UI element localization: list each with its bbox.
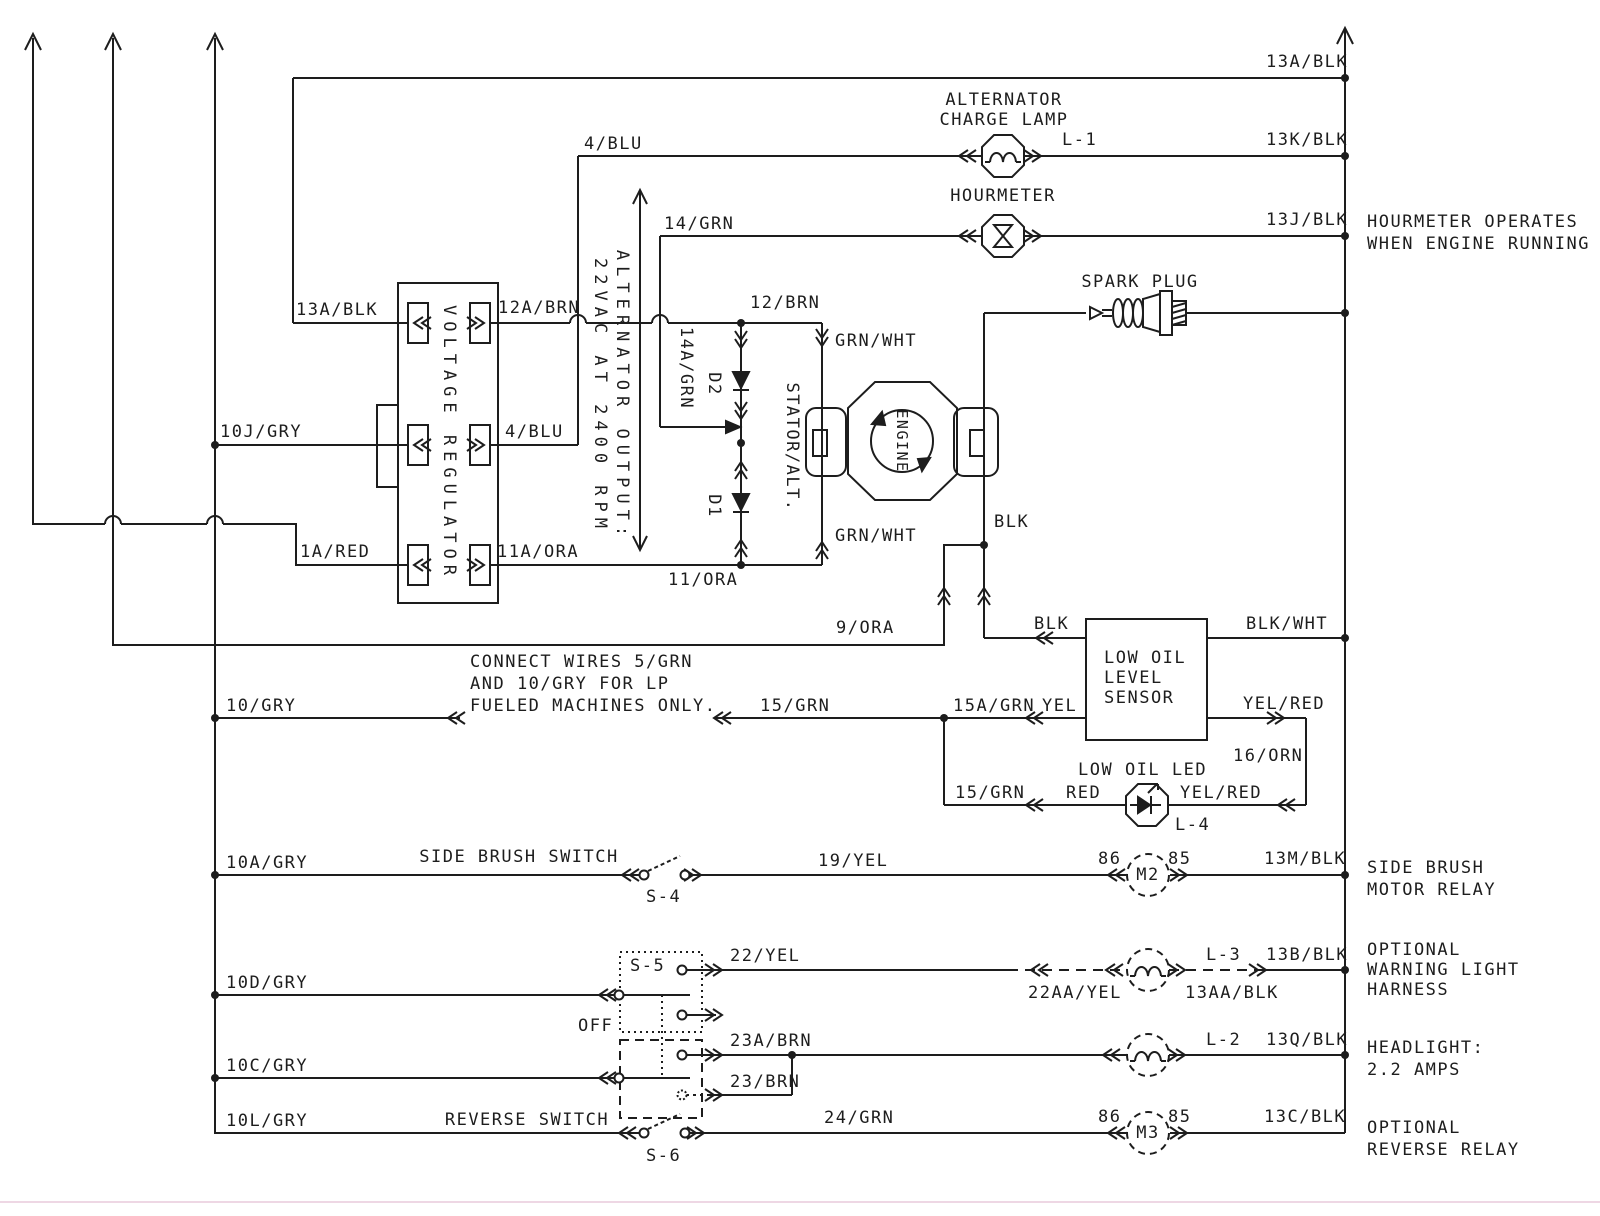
relay-m2-pin-85: 85 — [1168, 849, 1191, 869]
wire-label-10-gry: 10/GRY — [226, 696, 296, 716]
wire-label-22aa-yel: 22AA/YEL — [1028, 983, 1122, 1003]
switch-s5-icon — [620, 952, 702, 1118]
wire-label-10d-gry: 10D/GRY — [226, 973, 308, 993]
low-oil-led-icon — [1126, 784, 1168, 826]
wire-label-14a-grn: 14A/GRN — [676, 327, 696, 409]
stator-title: STATOR/ALT. — [782, 382, 802, 511]
relay-m2-pin-86: 86 — [1098, 849, 1121, 869]
wire-spark — [944, 313, 1345, 638]
hourmeter-note-1: HOURMETER OPERATES — [1367, 212, 1578, 232]
charge-lamp-title-2: CHARGE LAMP — [939, 110, 1068, 130]
spark-plug-title: SPARK PLUG — [1081, 272, 1198, 292]
wire-label-13k-blk: 13K/BLK — [1266, 130, 1348, 150]
reg-in-bot-label: 1A/RED — [300, 542, 370, 562]
wire-label-9-ora: 9/ORA — [836, 618, 895, 638]
diode-d2-label: D2 — [704, 372, 724, 395]
wire-label-yel-red-bot: YEL/RED — [1180, 783, 1262, 803]
wire-label-10a-gry: 10A/GRY — [226, 853, 308, 873]
wire-14-grn — [660, 236, 1345, 427]
wire-label-blk-engine: BLK — [994, 512, 1029, 532]
sensor-title-2: LEVEL — [1104, 668, 1163, 688]
relay-m3-pin-86: 86 — [1098, 1107, 1121, 1127]
reverse-desc-2: REVERSE RELAY — [1367, 1140, 1520, 1160]
wire-label-yel-red-top: YEL/RED — [1243, 694, 1325, 714]
wire-label-13b-blk: 13B/BLK — [1266, 945, 1348, 965]
relay-m2-id: M2 — [1136, 865, 1159, 885]
wire-label-10c-gry: 10C/GRY — [226, 1056, 308, 1076]
warning-desc-2: WARNING LIGHT — [1367, 960, 1520, 980]
sensor-title-1: LOW OIL — [1104, 648, 1186, 668]
wire-label-23a-brn: 23A/BRN — [730, 1031, 812, 1051]
wire-label-12-brn: 12/BRN — [750, 293, 820, 313]
headlight-desc-2: 2.2 AMPS — [1367, 1060, 1461, 1080]
wire-label-13c-blk: 13C/BLK — [1264, 1107, 1346, 1127]
alt-output-arrow — [633, 190, 647, 550]
switch-contacts — [615, 871, 690, 1138]
relay-m3-pin-85: 85 — [1168, 1107, 1191, 1127]
warning-desc-3: HARNESS — [1367, 980, 1449, 1000]
lamp-l2-icon — [1127, 1034, 1169, 1076]
wire-label-11-ora: 11/ORA — [668, 570, 738, 590]
switch-s6-blade — [648, 1114, 680, 1129]
wire-label-24-grn: 24/GRN — [824, 1108, 894, 1128]
scan-artifact-line — [0, 1201, 1600, 1203]
alt-output-line-1: ALTERNATOR OUTPUT: — [612, 250, 632, 542]
reg-in-mid-label: 10J/GRY — [220, 422, 302, 442]
alt-output-line-2: 22VAC AT 2400 RPM — [590, 258, 610, 534]
wire-label-16-orn: 16/ORN — [1233, 746, 1303, 766]
lamp-l3-id: L-3 — [1206, 945, 1241, 965]
wire-label-15-grn: 15/GRN — [760, 696, 830, 716]
wire-label-15a-grn: 15A/GRN — [953, 696, 1035, 716]
arrowhead-icon — [25, 28, 1353, 50]
sensor-title-3: SENSOR — [1104, 688, 1174, 708]
arrowhead-14a-icon — [726, 421, 740, 433]
side-brush-desc-1: SIDE BRUSH — [1367, 858, 1484, 878]
lamp-l2-id: L-2 — [1206, 1030, 1241, 1050]
hourmeter-note-2: WHEN ENGINE RUNNING — [1367, 234, 1590, 254]
low-oil-led-title: LOW OIL LED — [1078, 760, 1207, 780]
engine-title: ENGINE — [893, 409, 911, 472]
wire-label-4-blu: 4/BLU — [584, 134, 643, 154]
relay-m3-id: M3 — [1136, 1123, 1159, 1143]
lp-note-3: FUELED MACHINES ONLY. — [470, 696, 716, 716]
wire-label-13a-blk-top: 13A/BLK — [1266, 52, 1348, 72]
switch-s6-id: S-6 — [646, 1146, 681, 1166]
wire-label-13j-blk: 13J/BLK — [1266, 210, 1348, 230]
wire-label-13m-blk: 13M/BLK — [1264, 849, 1346, 869]
side-brush-desc-2: MOTOR RELAY — [1367, 880, 1496, 900]
hourmeter-title: HOURMETER — [950, 186, 1056, 206]
lamp-l1-id: L-1 — [1062, 130, 1097, 150]
wire-label-13aa-blk: 13AA/BLK — [1185, 983, 1279, 1003]
lp-note-2: AND 10/GRY FOR LP — [470, 674, 670, 694]
wire-label-15-grn-led: 15/GRN — [955, 783, 1025, 803]
diode-d1-icon — [733, 494, 749, 512]
charge-lamp-title-1: ALTERNATOR — [945, 90, 1062, 110]
reverse-switch-title: REVERSE SWITCH — [445, 1110, 609, 1130]
wiring-diagram: 13A/BLK ALTERNATOR CHARGE LAMP 4/BLU L-1… — [0, 0, 1600, 1216]
wire-label-yel: YEL — [1042, 696, 1077, 716]
wire-label-14-grn: 14/GRN — [664, 214, 734, 234]
reg-out-mid-label: 4/BLU — [505, 422, 564, 442]
reg-in-top-label: 13A/BLK — [296, 300, 378, 320]
lamp-l3-icon — [1127, 949, 1169, 991]
spark-plug-icon — [1090, 291, 1190, 335]
hourmeter-icon — [982, 215, 1024, 257]
reg-out-bot-label: 11A/ORA — [497, 542, 579, 562]
side-brush-switch-title: SIDE BRUSH SWITCH — [419, 847, 619, 867]
wire-label-10l-gry: 10L/GRY — [226, 1111, 308, 1131]
charge-lamp-icon — [982, 135, 1024, 177]
wire-label-19-yel: 19/YEL — [818, 851, 888, 871]
reg-out-top-label: 12A/BRN — [498, 298, 580, 318]
diode-d1-label: D1 — [704, 494, 724, 517]
switch-s5-off-label: OFF — [578, 1016, 613, 1036]
wire-hop — [105, 516, 223, 524]
wire-label-blk-sensor: BLK — [1034, 614, 1069, 634]
switch-s5-id: S-5 — [630, 956, 665, 976]
wire-label-13q-blk: 13Q/BLK — [1266, 1030, 1348, 1050]
led-l4-id: L-4 — [1175, 815, 1210, 835]
headlight-desc-1: HEADLIGHT: — [1367, 1038, 1484, 1058]
reverse-desc-1: OPTIONAL — [1367, 1118, 1461, 1138]
wire-label-blk-wht: BLK/WHT — [1246, 614, 1328, 634]
switch-s4-id: S-4 — [646, 887, 681, 907]
lp-note-1: CONNECT WIRES 5/GRN — [470, 652, 693, 672]
wire-label-grn-wht-bot: GRN/WHT — [835, 526, 917, 546]
wire-label-22-yel: 22/YEL — [730, 946, 800, 966]
wire-label-23-brn: 23/BRN — [730, 1072, 800, 1092]
junction-dots — [211, 74, 1349, 1082]
wire-label-grn-wht-top: GRN/WHT — [835, 331, 917, 351]
wire-label-red: RED — [1066, 783, 1101, 803]
switch-s4-blade — [648, 856, 680, 871]
voltage-regulator-title: VOLTAGE REGULATOR — [439, 305, 459, 581]
diode-d2-icon — [733, 372, 749, 390]
warning-desc-1: OPTIONAL — [1367, 940, 1461, 960]
